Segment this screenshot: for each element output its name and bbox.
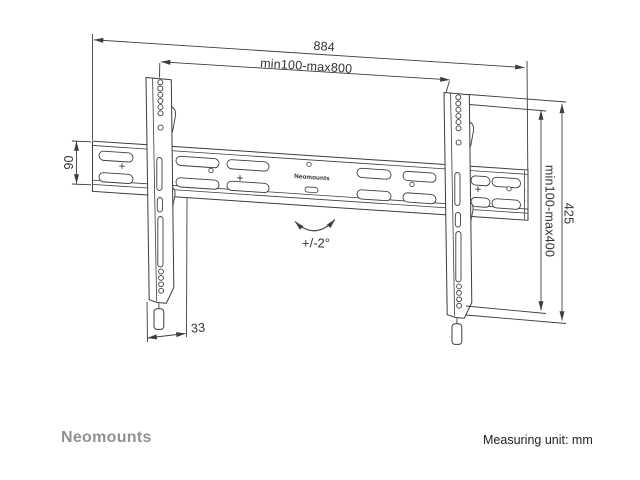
- diagram-page: Neomounts: [0, 0, 640, 480]
- brand-logo-text: Neomounts: [61, 429, 152, 447]
- ext-line-rail-height-top: [72, 141, 91, 142]
- ext-line-depth-right: [187, 198, 188, 337]
- ext-line-width-range-right: [446, 81, 450, 93]
- dim-rail-height-label: 90: [62, 155, 76, 169]
- dim-bracket-height-label: 425: [561, 203, 575, 224]
- tilt-arc: [295, 220, 335, 231]
- tilt-angle-label: +/-2°: [302, 236, 330, 251]
- dim-width-range-label: min100-max800: [260, 56, 353, 76]
- ext-line-depth-left: [147, 302, 148, 342]
- ext-line-bracket-height-top: [469, 95, 566, 103]
- left-tv-bracket: [146, 78, 176, 330]
- ext-line-total-width-right: [527, 61, 528, 170]
- wall-mount-technical-drawing: Neomounts: [0, 0, 640, 480]
- ext-line-rail-height-bottom: [72, 184, 91, 185]
- measuring-unit-label: Measuring unit: mm: [483, 433, 593, 447]
- dim-depth-label: 33: [190, 320, 205, 335]
- ext-line-height-range-top: [470, 105, 547, 112]
- ext-line-bracket-height-bottom: [466, 315, 566, 324]
- ext-line-height-range-bottom: [466, 306, 546, 314]
- dim-total-width-label: 884: [313, 39, 335, 54]
- dim-line-depth: [148, 334, 186, 339]
- dim-height-range-label: min100-max400: [542, 165, 556, 257]
